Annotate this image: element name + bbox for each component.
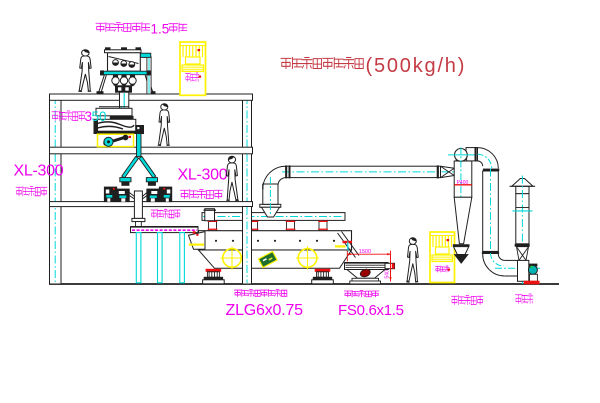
svg-text:(500kg/h): (500kg/h)	[366, 55, 467, 77]
svg-text:P400: P400	[457, 180, 469, 186]
svg-text:ZLG6x0.75: ZLG6x0.75	[226, 302, 304, 319]
svg-text:XL-300: XL-300	[14, 163, 64, 180]
svg-text:XL-300: XL-300	[178, 167, 228, 184]
svg-text:1500: 1500	[359, 249, 371, 255]
svg-text:540: 540	[385, 270, 391, 279]
svg-text:FS0.6x1.5: FS0.6x1.5	[338, 302, 404, 319]
svg-text:1.5: 1.5	[151, 22, 170, 37]
svg-text:50: 50	[92, 109, 107, 124]
